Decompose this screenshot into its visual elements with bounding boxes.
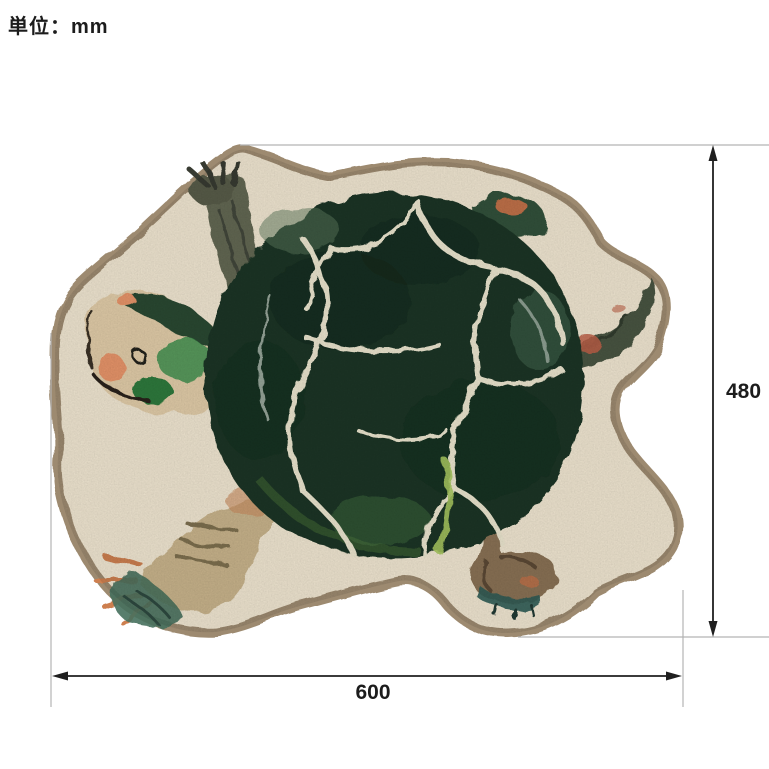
arrow-down-icon [709, 621, 718, 637]
height-dimension-label: 480 [726, 381, 761, 402]
arrow-right-icon [666, 672, 682, 681]
width-dimension-line [52, 672, 682, 681]
arrow-left-icon [52, 672, 68, 681]
rug-grain-texture [40, 130, 700, 650]
height-dimension-line [709, 145, 718, 637]
arrow-up-icon [709, 145, 718, 161]
width-dimension-label: 600 [344, 682, 402, 703]
turtle-rug-illustration [0, 0, 769, 769]
dimension-diagram-page: 単位：mm [0, 0, 769, 769]
